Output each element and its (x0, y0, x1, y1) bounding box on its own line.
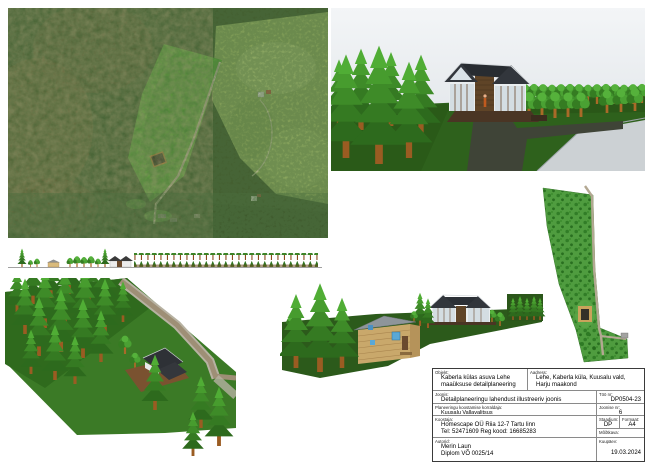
koostaja-value: Homescape OÜ Riia 12-7 Tartu linn Tel: 5… (433, 422, 596, 436)
titleblock-cell-joonis: Joonis: Detailplaneeringu lahendust illu… (433, 391, 597, 404)
too-nr-value: DP0504-23 (597, 397, 644, 404)
kuupaev-label: Kuupäev: (597, 438, 644, 444)
titleblock-cell-koostaja: Koostaja: Homescape OÜ Riia 12-7 Tartu l… (433, 416, 597, 438)
titleblock-cell-too-nr: Töö nr: DP0504-23 (597, 391, 644, 404)
titleblock-cell-objekt: Objekt: Kaberla külas asuva Lehe maaüksu… (433, 369, 528, 391)
joonis-value: Detailplaneeringu lahendust illustreeriv… (433, 397, 596, 404)
titleblock-cell-aadress: Aadress: Lehe, Kaberla küla, Kuusalu val… (528, 369, 644, 391)
aadress-line2: Harju maakond (536, 382, 577, 388)
elevation-sauna (47, 260, 60, 268)
site-plan (538, 184, 642, 366)
title-block: Objekt: Kaberla külas asuva Lehe maaüksu… (432, 368, 645, 462)
aerial-photo-image (8, 8, 328, 238)
titleblock-cell-autorid: Autorid: Merin Laun Diplom VÕ 0025/14 (433, 438, 597, 461)
autorid-value: Merin Laun Diplom VÕ 0025/14 (433, 444, 596, 458)
titleblock-cell-staadium: Staadium: DP (597, 416, 620, 429)
mootkava-label: Mõõtkava: (597, 429, 644, 435)
titleblock-cell-kuupaev: Kuupäev: 19.03.2024 (597, 438, 644, 461)
elevation-strip (8, 246, 322, 273)
kuupaev-value: 19.03.2024 (597, 450, 644, 457)
koostaja-line2: Tel: 52471609 Reg kood: 16685283 (441, 429, 536, 435)
titleblock-cell-joonise-nr: Joonise nr: 6 (597, 404, 644, 416)
objekt-value: Kaberla külas asuva Lehe maaüksuse detai… (433, 375, 527, 389)
autor-line1: Merin Laun (441, 444, 471, 450)
render-birdseye-view (5, 278, 236, 464)
aadress-line1: Lehe, Kaberla küla, Kuusalu vald, (536, 375, 625, 381)
koostaja-line1: Homescape OÜ Riia 12-7 Tartu linn (441, 422, 535, 428)
titleblock-cell-korraldaja: Planeeringu koostamise korraldaja: Kuusa… (433, 404, 597, 416)
autor-line2: Diplom VÕ 0025/14 (441, 451, 493, 457)
titleblock-cell-formaat: Formaat: A4 (620, 416, 644, 429)
person-figure (483, 94, 486, 97)
elevation-house (108, 256, 133, 267)
objekt-line2: maaüksuse detailplaneering (441, 382, 516, 388)
main-house-render (428, 295, 496, 325)
house-footprint (578, 306, 592, 322)
render-street-view (331, 8, 645, 171)
formaat-value: A4 (620, 422, 644, 429)
staadium-value: DP (597, 422, 619, 429)
aadress-value: Lehe, Kaberla küla, Kuusalu vald, Harju … (528, 375, 644, 389)
plan-sheet: Objekt: Kaberla külas asuva Lehe maaüksu… (0, 0, 650, 467)
objekt-line1: Kaberla külas asuva Lehe (441, 375, 510, 381)
titleblock-cell-mootkava: Mõõtkava: (597, 429, 644, 438)
